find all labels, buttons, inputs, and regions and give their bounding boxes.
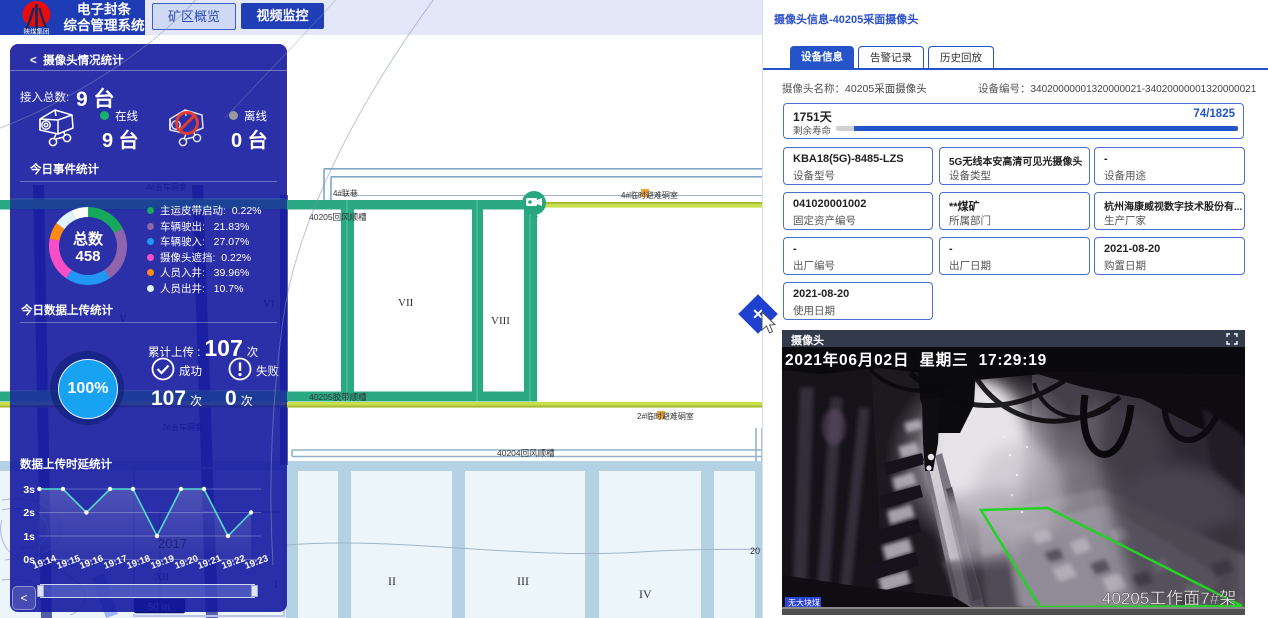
svg-text:2#临时避难硐室: 2#临时避难硐室	[637, 411, 694, 421]
svg-text:总数: 总数	[73, 230, 104, 248]
svg-text:20: 20	[750, 546, 760, 556]
svg-text:40204回风顺槽: 40204回风顺槽	[497, 448, 555, 458]
svg-text:VIII: VIII	[491, 315, 510, 327]
svg-text:1s: 1s	[23, 531, 35, 543]
svg-text:陕煤集团: 陕煤集团	[24, 27, 50, 36]
svg-text:40205工作面7#架: 40205工作面7#架	[1102, 589, 1236, 608]
svg-text:II: II	[388, 574, 396, 588]
svg-text:2s: 2s	[23, 507, 35, 519]
svg-text:2021年06月02日 星期三 17:29:19: 2021年06月02日 星期三 17:29:19	[785, 350, 1047, 369]
svg-text:19:14: 19:14	[31, 553, 58, 572]
svg-text:3s: 3s	[23, 484, 35, 496]
svg-text:4#临时避难硐室: 4#临时避难硐室	[621, 190, 678, 200]
svg-text:无大块煤: 无大块煤	[788, 598, 820, 608]
svg-text:458: 458	[75, 248, 100, 265]
svg-text:40205回风顺槽: 40205回风顺槽	[309, 212, 367, 222]
svg-text:VII: VII	[398, 297, 414, 309]
svg-text:40205胶带顺槽: 40205胶带顺槽	[309, 392, 367, 402]
svg-text:III: III	[517, 574, 529, 588]
svg-text:4#联巷: 4#联巷	[333, 189, 358, 198]
svg-text:IV: IV	[639, 587, 652, 601]
